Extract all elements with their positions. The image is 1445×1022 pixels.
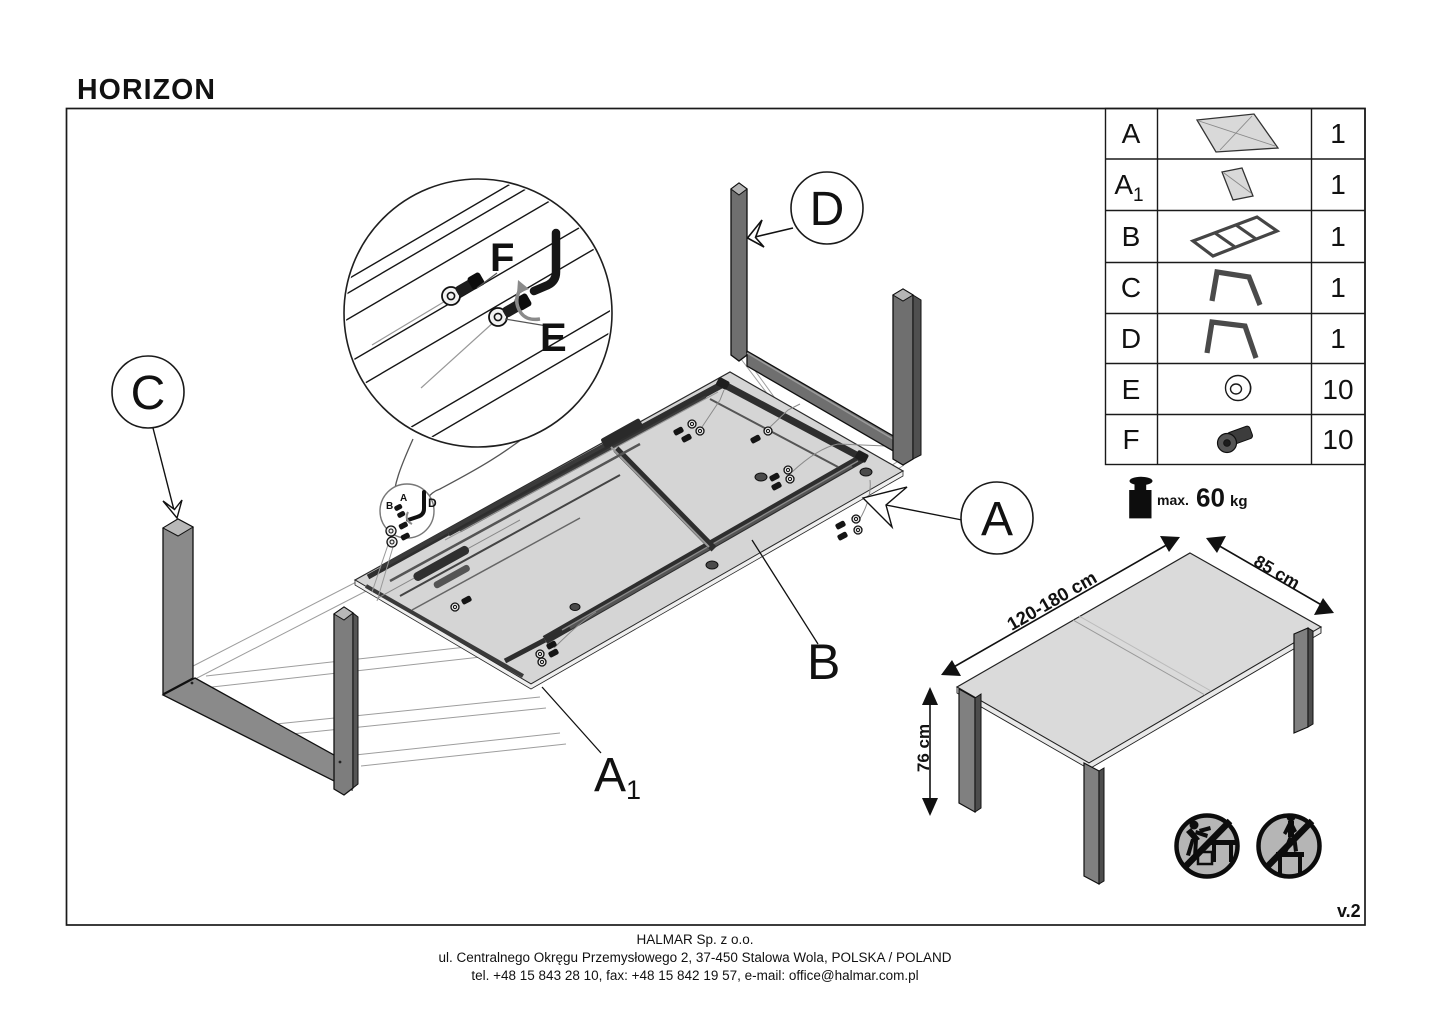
svg-text:A: A (400, 493, 407, 504)
svg-text:A: A (981, 493, 1013, 546)
svg-text:ul. Centralnego Okręgu Przemys: ul. Centralnego Okręgu Przemysłowego 2, … (438, 950, 951, 965)
svg-text:1: 1 (1330, 323, 1346, 354)
svg-text:1: 1 (1330, 169, 1346, 200)
svg-text:A: A (1122, 118, 1141, 149)
svg-text:B: B (1122, 221, 1141, 252)
svg-text:max.: max. (1157, 492, 1189, 508)
svg-text:1: 1 (1330, 221, 1346, 252)
svg-text:B: B (386, 501, 393, 512)
svg-text:76 cm: 76 cm (914, 724, 933, 772)
svg-text:C: C (1121, 272, 1141, 303)
svg-text:D: D (810, 183, 845, 236)
svg-text:F: F (490, 236, 514, 280)
svg-text:D: D (1121, 323, 1141, 354)
svg-text:D: D (428, 496, 437, 510)
svg-text:HORIZON: HORIZON (77, 74, 216, 106)
svg-text:1: 1 (1330, 272, 1346, 303)
svg-text:10: 10 (1322, 424, 1353, 455)
svg-text:C: C (131, 367, 166, 420)
svg-text:HALMAR Sp. z o.o.: HALMAR Sp. z o.o. (636, 932, 753, 947)
svg-text:60: 60 (1196, 483, 1225, 513)
svg-text:E: E (1122, 374, 1141, 405)
svg-text:1: 1 (1330, 118, 1346, 149)
svg-text:E: E (540, 316, 567, 360)
svg-text:v.2: v.2 (1337, 901, 1361, 921)
svg-text:10: 10 (1322, 374, 1353, 405)
svg-text:B: B (807, 634, 840, 690)
svg-text:F: F (1122, 424, 1139, 455)
svg-text:tel. +48 15 843 28 10, fax: +4: tel. +48 15 843 28 10, fax: +48 15 842 1… (471, 968, 918, 983)
svg-text:kg: kg (1230, 493, 1248, 510)
